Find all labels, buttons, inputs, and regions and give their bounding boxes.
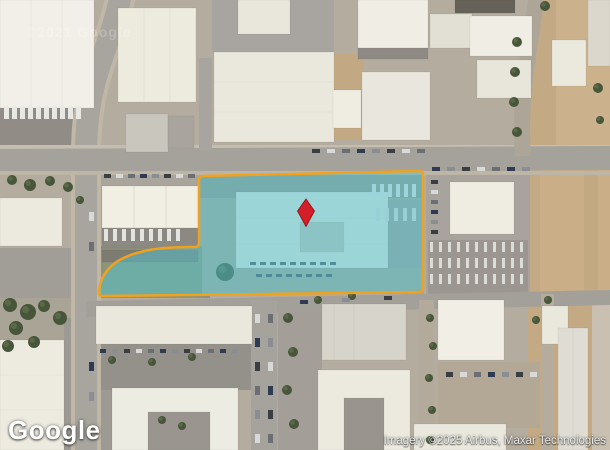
imagery-attribution: Imagery ©2025 Airbus, Maxar Technologies: [384, 435, 606, 447]
google-watermark: ©2021 Google: [26, 24, 132, 40]
satellite-map[interactable]: ©2021 Google Google Imagery ©2025 Airbus…: [0, 0, 610, 450]
google-logo[interactable]: Google: [8, 415, 101, 446]
satellite-imagery: [0, 0, 610, 450]
